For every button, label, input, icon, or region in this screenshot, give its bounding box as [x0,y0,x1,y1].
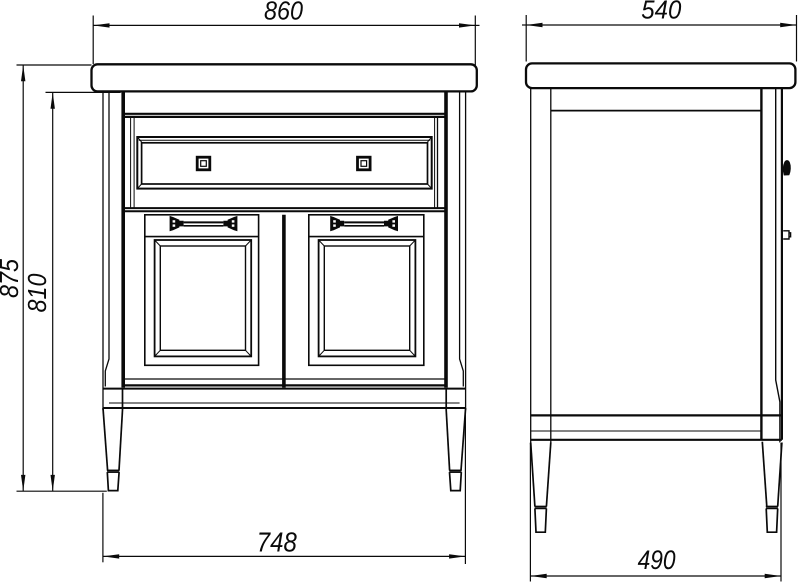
svg-text:748: 748 [257,526,297,557]
svg-text:540: 540 [641,0,681,25]
svg-text:860: 860 [264,0,303,26]
svg-text:875: 875 [0,259,24,298]
svg-text:490: 490 [638,545,676,575]
svg-text:810: 810 [22,273,52,312]
